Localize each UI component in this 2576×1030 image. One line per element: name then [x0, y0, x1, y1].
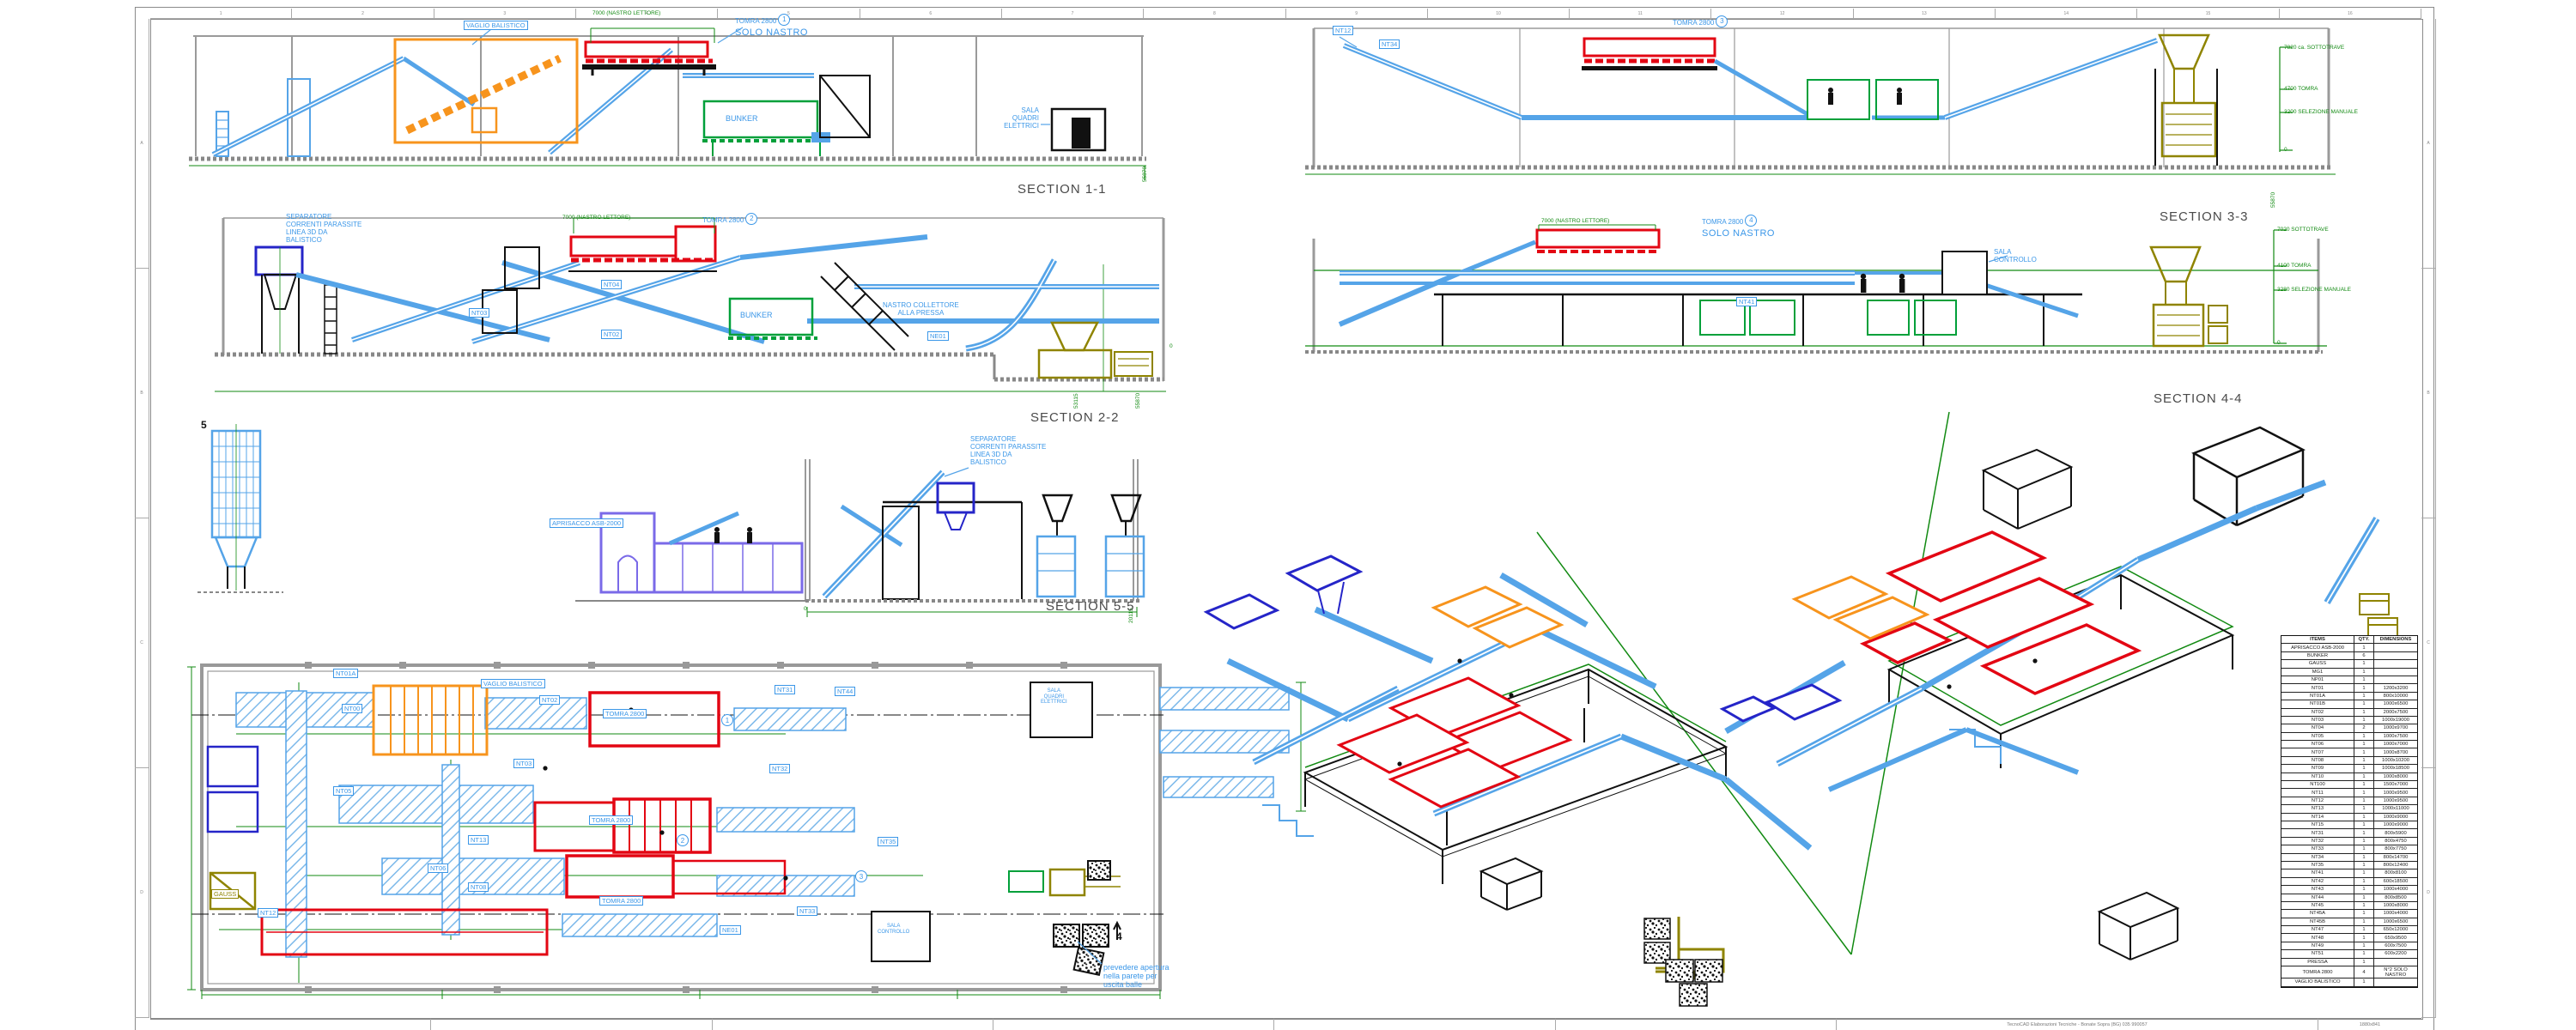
- dim-nastro-lettore-1: 7000 (NASTRO LETTORE): [592, 10, 660, 16]
- section-4-4-drawing: [1305, 223, 2370, 408]
- operators: [1861, 274, 1905, 293]
- cell-qty: 1: [2354, 869, 2374, 876]
- cell-qty: 1: [2354, 942, 2374, 949]
- vaglio-balistico-machine: [395, 39, 577, 142]
- table-row: NT07 1 1000x8700: [2281, 748, 2417, 756]
- cell-dim: [2374, 978, 2417, 985]
- cell-qty: 1: [2354, 950, 2374, 957]
- ruler-tick: 9: [1286, 9, 1428, 19]
- cell-qty: 1: [2354, 660, 2374, 667]
- cell-item: NT31: [2281, 829, 2354, 836]
- cell-item: NT44: [2281, 894, 2354, 901]
- tag-nt01a: NT01A: [333, 669, 358, 678]
- wall: [805, 459, 1138, 601]
- tomra-label-1: TOMRA 28001 SOLO NASTRO: [735, 12, 808, 38]
- tag-nt08: NT08: [468, 882, 489, 892]
- cell-dim: 1000x6500: [2374, 918, 2417, 925]
- tag-ne01-plan: NE01: [720, 925, 741, 935]
- tag-nt04: NT04: [601, 280, 622, 289]
- iso2-conveyors: [1726, 482, 2377, 790]
- ruler-letter: C: [135, 518, 149, 768]
- iso1-stairs: [1262, 805, 1314, 836]
- section-3-3-title: SECTION 3-3: [2160, 209, 2249, 224]
- dim-55870-1: 55870: [1142, 167, 1148, 182]
- section-5-5-title: SECTION 5-5: [1046, 599, 1135, 614]
- cell-item: GAUSS: [2281, 660, 2354, 667]
- cell-qty: 1: [2354, 862, 2374, 869]
- parts-table: ITEMS QTY. DIMENSIONS APRISACCO ASB-2000…: [2281, 635, 2418, 988]
- control-room-label: SALA CONTROLLO: [1994, 249, 2037, 264]
- cell-dim: 1000x4000: [2374, 910, 2417, 917]
- cell-dim: [2374, 644, 2417, 651]
- table-row: NT45B 1 1000x6500: [2281, 918, 2417, 926]
- tomra-plan-number-1: 1: [721, 714, 733, 726]
- cell-qty: 1: [2354, 805, 2374, 812]
- cell-qty: 1: [2354, 684, 2374, 691]
- ruler-letter: D: [2421, 768, 2436, 1018]
- cell-dim: 1000x11000: [2374, 805, 2417, 812]
- cell-qty: 1: [2354, 918, 2374, 925]
- section-4-4-title: SECTION 4-4: [2154, 391, 2243, 406]
- company-name: TecnoCAD Elaborazioni Tecniche - Bonate …: [1837, 1019, 2318, 1030]
- dim-zero-s22: 0: [1170, 343, 1173, 349]
- cell-dim: 1000x19000: [2374, 717, 2417, 724]
- cell-qty: 1: [2354, 854, 2374, 861]
- ruler-letter: C: [2421, 518, 2436, 768]
- iso1-bale-cube: [1481, 858, 1541, 910]
- baler-line: [601, 513, 802, 592]
- ruler-letter: A: [135, 19, 149, 269]
- cell-dim: 800x14700: [2374, 854, 2417, 861]
- cell-qty: 1: [2354, 700, 2374, 707]
- cell-qty: 1: [2354, 894, 2374, 901]
- cell-item: NT32: [2281, 838, 2354, 845]
- gauss-label: GAUSS: [211, 889, 239, 899]
- tomra-plan-label-2: TOMRA 2800: [589, 815, 633, 825]
- table-row: NT42 1 600x18500: [2281, 878, 2417, 886]
- cell-item: NT35: [2281, 862, 2354, 869]
- parts-table-header: ITEMS QTY. DIMENSIONS: [2281, 636, 2417, 644]
- section-cut-5-marker: 5: [201, 419, 207, 431]
- conveyors: [824, 468, 969, 597]
- dim-sottotrave-s33: 7820 ca. SOTTOTRAVE: [2284, 45, 2344, 51]
- cell-item: APRISACCO ASB-2000: [2281, 644, 2354, 651]
- cell-dim: 1000x9500: [2374, 789, 2417, 796]
- ruler-left: ABCD: [135, 19, 149, 1018]
- cell-qty: 1: [2354, 934, 2374, 941]
- cell-dim: 1000x18500: [2374, 765, 2417, 772]
- tag-nt00: NT00: [342, 704, 362, 713]
- ruler-tick: 12: [1711, 9, 1853, 19]
- title-strip-cell: [1556, 1019, 1837, 1030]
- col-qty: QTY.: [2354, 636, 2374, 643]
- control-room-plan: [872, 912, 930, 961]
- tag-nt13: NT13: [468, 835, 489, 845]
- cell-dim: 1000x4000: [2374, 886, 2417, 893]
- ruler-letter: B: [135, 269, 149, 518]
- eddy-current-separator: [256, 247, 302, 354]
- table-row: NT13 1 1000x11000: [2281, 805, 2417, 813]
- cell-qty: 1: [2354, 741, 2374, 748]
- dim-53115: 53115: [1073, 393, 1079, 409]
- table-row: NT41 1 800x8100: [2281, 869, 2417, 877]
- tag-nt02: NT02: [601, 330, 622, 339]
- table-row: NT01 1 1200x3200: [2281, 684, 2417, 692]
- cell-qty: 1: [2354, 765, 2374, 772]
- sheet-size: 1880x841: [2318, 1019, 2421, 1030]
- vaglio-balistico-label: VAGLIO BALISTICO: [464, 21, 528, 30]
- cell-item: NT14: [2281, 814, 2354, 821]
- wall-opening-note: prevedere apertura nella parete per usci…: [1103, 963, 1170, 989]
- table-row: NT44 1 800x8500: [2281, 894, 2417, 902]
- cell-dim: 650x12000: [2374, 926, 2417, 933]
- table-row: VAGLIO BALISTICO 1: [2281, 978, 2417, 986]
- control-room: [1942, 251, 1987, 294]
- table-row: NT35 1 800x12400: [2281, 862, 2417, 869]
- tag-nt03: NT03: [469, 308, 489, 318]
- cell-qty: 1: [2354, 886, 2374, 893]
- conveyors: [296, 237, 1159, 348]
- tag-nt41: NT41: [1736, 297, 1757, 306]
- walls: [1314, 28, 2329, 167]
- title-strip-cell: [993, 1019, 1274, 1030]
- cell-item: NT06: [2281, 741, 2354, 748]
- cell-item: BUNKER: [2281, 652, 2354, 659]
- cell-item: NT45A: [2281, 910, 2354, 917]
- cell-item: NT11: [2281, 789, 2354, 796]
- cell-qty: 1: [2354, 959, 2374, 966]
- support-frame: [820, 76, 870, 137]
- electrical-room-plan-label: SALA QUADRI ELETTRICI: [1041, 688, 1067, 706]
- table-row: NT48 1 650x9500: [2281, 934, 2417, 942]
- table-row: NT06 1 1000x7000: [2281, 741, 2417, 748]
- cad-sheet: 12345678910111213141516 ABCD ABCD: [0, 0, 2576, 1030]
- tomra-label-4: TOMRA 28004 SOLO NASTRO: [1702, 213, 1775, 239]
- separator-label-s22: SEPARATORE CORRENTI PARASSITE LINEA 3D D…: [286, 214, 361, 245]
- dim-nastro-lettore-4: 7000 (NASTRO LETTORE): [1541, 218, 1609, 224]
- tag-nt12-plan: NT12: [258, 908, 278, 918]
- iso2-bales: [1666, 960, 1722, 1006]
- cell-qty: 1: [2354, 829, 2374, 836]
- tag-nt33: NT33: [797, 906, 817, 916]
- table-row: NT14 1 1000x9000: [2281, 814, 2417, 821]
- cell-dim: 800x12400: [2374, 862, 2417, 869]
- cell-qty: 1: [2354, 878, 2374, 885]
- cell-item: NT45B: [2281, 918, 2354, 925]
- ruler-tick: 10: [1428, 9, 1570, 19]
- cell-item: VAGLIO BALISTICO: [2281, 978, 2354, 985]
- ruler-right: ABCD: [2421, 19, 2436, 1018]
- tag-nt03-plan: NT03: [513, 759, 534, 768]
- cell-dim: 800x8100: [2374, 869, 2417, 876]
- cell-dim: [2374, 676, 2417, 683]
- cell-item: NT01: [2281, 684, 2354, 691]
- cell-dim: 1000x7000: [2374, 741, 2417, 748]
- cell-item: NT10: [2281, 773, 2354, 780]
- control-room-plan-label: SALA CONTROLLO: [878, 924, 909, 935]
- dim-sottotrave-s44: 7020 SOTTOTRAVE: [2277, 227, 2329, 233]
- tag-nt02-plan: NT02: [539, 695, 560, 705]
- table-row: NT100 1 1500x7000: [2281, 781, 2417, 789]
- cell-item: NP01: [2281, 676, 2354, 683]
- table-row: NT12 1 1000x9500: [2281, 797, 2417, 805]
- cell-qty: 1: [2354, 814, 2374, 821]
- cell-qty: 1: [2354, 709, 2374, 716]
- tomra-plan-label-3: TOMRA 2800: [599, 896, 643, 906]
- cell-dim: 800x7750: [2374, 845, 2417, 852]
- table-row: NT51 1 600x2200: [2281, 950, 2417, 958]
- bunker-label-1: BUNKER: [726, 114, 758, 123]
- cell-item: NT04: [2281, 724, 2354, 731]
- tomra-plan-label-1: TOMRA 2800: [603, 709, 647, 718]
- tomra-number-2: 2: [745, 213, 757, 225]
- tag-nt32: NT32: [769, 764, 790, 773]
- cell-item: NT48: [2281, 934, 2354, 941]
- cell-item: NT15: [2281, 821, 2354, 828]
- cell-qty: 1: [2354, 693, 2374, 700]
- tomra-machine: [1537, 230, 1659, 251]
- cell-dim: 800x5900: [2374, 829, 2417, 836]
- separator-label-s55: SEPARATORE CORRENTI PARASSITE LINEA 3D D…: [970, 436, 1046, 467]
- ruler-tick: 3: [434, 9, 576, 19]
- table-row: APRISACCO ASB-2000 1: [2281, 644, 2417, 651]
- table-row: NT33 1 800x7750: [2281, 845, 2417, 853]
- cell-item: NT02: [2281, 709, 2354, 716]
- cell-qty: 1: [2354, 789, 2374, 796]
- ruler-letter: D: [135, 768, 149, 1018]
- cell-dim: 800x10000: [2374, 693, 2417, 700]
- table-row: NT09 1 1000x18500: [2281, 765, 2417, 772]
- cell-dim: 1000x9500: [2374, 797, 2417, 804]
- table-row: NT31 1 800x5900: [2281, 829, 2417, 837]
- cell-dim: 1500x7000: [2374, 781, 2417, 788]
- cell-item: NT49: [2281, 942, 2354, 949]
- section-3-3-drawing: [1305, 21, 2344, 223]
- iso2-small-cube: [2099, 893, 2178, 960]
- table-row: NT03 1 1000x19000: [2281, 717, 2417, 724]
- table-row: NT15 1 1000x9000: [2281, 821, 2417, 829]
- dim-55870-2: 55870: [1135, 393, 1141, 409]
- press-frame: [2155, 69, 2217, 166]
- cell-item: NT41: [2281, 869, 2354, 876]
- col-dimensions: DIMENSIONS: [2374, 636, 2417, 643]
- title-strip-cell: [1274, 1019, 1555, 1030]
- cell-item: NT51: [2281, 950, 2354, 957]
- cell-dim: 800x8500: [2374, 894, 2417, 901]
- vaglio-balistico-plan-label: VAGLIO BALISTICO: [481, 679, 545, 688]
- table-row: NT01A 1 800x10000: [2281, 693, 2417, 700]
- cell-qty: 1: [2354, 926, 2374, 933]
- cell-item: NT08: [2281, 757, 2354, 764]
- cell-qty: 1: [2354, 676, 2374, 683]
- dim-selezione-s33: 3200 SELEZIONE MANUALE: [2284, 109, 2358, 115]
- ruler-tick: 8: [1144, 9, 1285, 19]
- tomra-number-3: 3: [1716, 15, 1728, 27]
- tomra-machine: [1582, 39, 1717, 70]
- cell-dim: [2374, 660, 2417, 667]
- section-5-5-drawing: [541, 433, 1159, 618]
- table-row: NT05 1 1000x7500: [2281, 733, 2417, 741]
- cell-dim: 1000x8000: [2374, 773, 2417, 780]
- section-1-1-title: SECTION 1-1: [1018, 182, 1107, 197]
- cell-item: MG1: [2281, 669, 2354, 676]
- table-row: NT01B 1 1000x6500: [2281, 700, 2417, 708]
- cell-dim: 1000x6500: [2374, 700, 2417, 707]
- tomra-plan-number-3: 3: [855, 870, 867, 882]
- cell-item: PRESSA: [2281, 959, 2354, 966]
- tomra-label-3: TOMRA 28003: [1673, 14, 1728, 29]
- dim-nastro-lettore-2: 7000 (NASTRO LETTORE): [562, 215, 630, 221]
- dim-selezione-s44: 3280 SELEZIONE MANUALE: [2277, 287, 2351, 293]
- cell-dim: [2374, 959, 2417, 966]
- conveyors: [1340, 37, 2157, 118]
- ruler-tick: 14: [1996, 9, 2137, 19]
- sorting-booths: [1807, 80, 1938, 119]
- cell-item: NT45: [2281, 902, 2354, 909]
- dim-zero-s33: 0: [2284, 147, 2287, 153]
- cell-qty: 1: [2354, 748, 2374, 755]
- cell-qty: 1: [2354, 717, 2374, 724]
- iso1-bales: [1644, 918, 1670, 963]
- ruler-tick: 2: [292, 9, 434, 19]
- table-row: NT10 1 1000x8000: [2281, 773, 2417, 781]
- tag-nt44: NT44: [835, 687, 855, 696]
- cell-item: NT100: [2281, 781, 2354, 788]
- table-row: NT11 1 1000x9500: [2281, 789, 2417, 797]
- table-row: MG1 1: [2281, 669, 2417, 676]
- ruler-tick: 13: [1854, 9, 1996, 19]
- cell-item: NT01B: [2281, 700, 2354, 707]
- tag-nt06: NT06: [428, 863, 448, 873]
- height-dim-line: [2280, 47, 2293, 152]
- cell-item: NT47: [2281, 926, 2354, 933]
- aprisacco-label: APRISACCO ASB-2000: [550, 518, 623, 528]
- funnels: [1043, 495, 1140, 536]
- feed-tower-drawing: [193, 421, 288, 605]
- cell-item: NT13: [2281, 805, 2354, 812]
- dim-tomra-s33: 4700 TOMRA: [2284, 86, 2318, 92]
- cell-qty: 1: [2354, 910, 2374, 917]
- cell-item: NT09: [2281, 765, 2354, 772]
- col-items: ITEMS: [2281, 636, 2354, 643]
- electrical-room: [1052, 109, 1105, 150]
- isometric-views-drawing: [1176, 403, 2404, 1030]
- press: [1039, 323, 1152, 378]
- tomra-number-1: 1: [778, 14, 790, 26]
- title-strip: TecnoCAD Elaborazioni Tecniche - Bonate …: [150, 1018, 2421, 1030]
- site-boundary-lines: [1537, 412, 1949, 954]
- table-row: TOMRA 2800 4 N°2 SOLO NASTRO: [2281, 966, 2417, 978]
- title-strip-cell: [431, 1019, 712, 1030]
- press-funnel: [2151, 247, 2227, 346]
- tag-nt31: NT31: [775, 685, 795, 694]
- cell-qty: 1: [2354, 781, 2374, 788]
- cell-item: NT33: [2281, 845, 2354, 852]
- ladder: [325, 285, 337, 354]
- cell-dim: 800x4750: [2374, 838, 2417, 845]
- cell-qty: 1: [2354, 644, 2374, 651]
- section-2-2-title: SECTION 2-2: [1030, 410, 1120, 425]
- cell-qty: 6: [2354, 652, 2374, 659]
- cell-qty: 2: [2354, 724, 2374, 731]
- dim-tomra-s44: 4100 TOMRA: [2277, 263, 2312, 269]
- iso-view-1: [1206, 556, 1810, 980]
- table-row: NP01 1: [2281, 676, 2417, 684]
- cell-item: NT01A: [2281, 693, 2354, 700]
- cell-qty: 1: [2354, 733, 2374, 740]
- cell-dim: 1200x3200: [2374, 684, 2417, 691]
- cell-dim: 600x7500: [2374, 942, 2417, 949]
- title-strip-cell: [713, 1019, 993, 1030]
- cell-dim: 1000x10200: [2374, 757, 2417, 764]
- ruler-tick: 1: [150, 9, 292, 19]
- dim-zero-s55: 0: [804, 606, 807, 612]
- ruler-tick: 7: [1002, 9, 1144, 19]
- cell-qty: 1: [2354, 757, 2374, 764]
- ruler-tick: 15: [2137, 9, 2279, 19]
- table-row: NT49 1 600x7500: [2281, 942, 2417, 950]
- ruler-tick: 6: [860, 9, 1002, 19]
- tag-nt12-s33: NT12: [1333, 26, 1353, 35]
- table-row: NT32 1 800x4750: [2281, 838, 2417, 845]
- eddy-current-separator: [938, 483, 974, 530]
- table-row: NT45A 1 1000x4000: [2281, 910, 2417, 918]
- cell-qty: 1: [2354, 902, 2374, 909]
- tag-nt05-plan: NT05: [333, 786, 354, 796]
- tag-ne01: NE01: [927, 331, 949, 341]
- tomra-number-4: 4: [1745, 215, 1757, 227]
- section-2-2-drawing: [215, 213, 1202, 423]
- cell-qty: 1: [2354, 797, 2374, 804]
- tomra-label-2: TOMRA 28002: [702, 211, 757, 227]
- cell-item: NT03: [2281, 717, 2354, 724]
- cell-qty: 4: [2354, 966, 2374, 978]
- cell-dim: 2000x7500: [2374, 709, 2417, 716]
- bunker-label-2: BUNKER: [740, 311, 773, 319]
- nastro-collettore-label: NASTRO COLLETTORE ALLA PRESSA: [883, 302, 959, 318]
- electrical-room-label: SALA QUADRI ELETTRICI: [987, 107, 1039, 130]
- table-row: PRESSA 1: [2281, 959, 2417, 966]
- cell-item: NT07: [2281, 748, 2354, 755]
- dim-zero-s44: 0: [2277, 340, 2281, 346]
- cell-dim: 1000x7500: [2374, 733, 2417, 740]
- dim-55870-3: 55870: [2270, 192, 2276, 208]
- cell-qty: 1: [2354, 669, 2374, 676]
- cell-dim: 1000x9000: [2374, 821, 2417, 828]
- walls: [223, 218, 1163, 381]
- cell-item: NT43: [2281, 886, 2354, 893]
- iso2-white-cube: [1984, 450, 2071, 529]
- title-strip-cell: [150, 1019, 431, 1030]
- cell-dim: 600x2200: [2374, 950, 2417, 957]
- iso2-separator: [1722, 685, 1839, 721]
- cell-dim: [2374, 652, 2417, 659]
- table-row: BUNKER 6: [2281, 652, 2417, 660]
- cell-item: NT42: [2281, 878, 2354, 885]
- table-row: NT47 1 650x12000: [2281, 926, 2417, 934]
- bag-bunkers: [1037, 536, 1144, 597]
- ground-dim-line: [189, 166, 1146, 180]
- cell-dim: 1000x9700: [2374, 724, 2417, 731]
- table-row: NT02 1 2000x7500: [2281, 709, 2417, 717]
- cell-dim: 650x9500: [2374, 934, 2417, 941]
- section-cut-4-marker: 4: [1116, 930, 1122, 942]
- cell-item: NT05: [2281, 733, 2354, 740]
- ruler-letter: B: [2421, 269, 2436, 518]
- cell-dim: 600x18500: [2374, 878, 2417, 885]
- cell-qty: 1: [2354, 978, 2374, 985]
- tomra-machine: [568, 227, 717, 271]
